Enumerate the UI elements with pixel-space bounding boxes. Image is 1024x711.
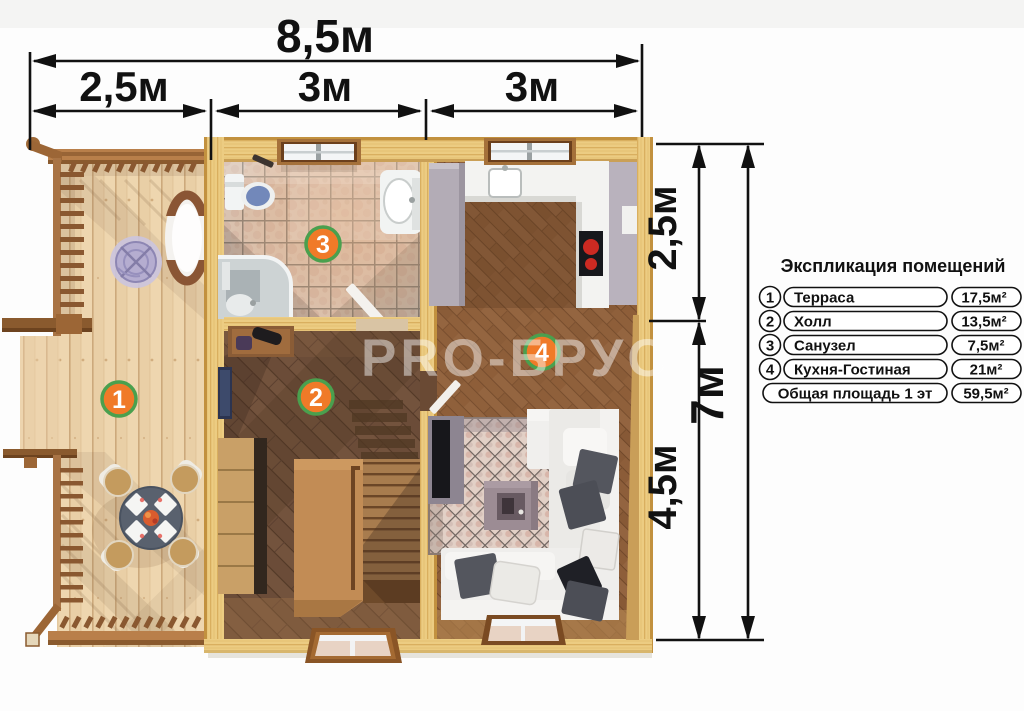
svg-text:3м: 3м — [298, 63, 352, 110]
svg-text:Терраса: Терраса — [794, 290, 855, 307]
svg-text:PRO-БРУС: PRO-БРУС — [361, 329, 670, 388]
svg-text:1: 1 — [766, 290, 774, 307]
svg-text:4: 4 — [766, 362, 775, 379]
svg-text:Санузел: Санузел — [794, 338, 856, 355]
svg-text:3: 3 — [316, 231, 330, 259]
svg-text:7м: 7м — [681, 365, 733, 425]
svg-text:17,5м²: 17,5м² — [961, 290, 1006, 307]
svg-text:2,5м: 2,5м — [79, 63, 168, 110]
svg-text:2,5м: 2,5м — [641, 185, 685, 270]
svg-text:8,5м: 8,5м — [276, 10, 374, 62]
svg-text:Экспликация помещений: Экспликация помещений — [781, 256, 1006, 276]
svg-text:1: 1 — [112, 386, 126, 414]
svg-text:3м: 3м — [505, 63, 559, 110]
svg-text:13,5м²: 13,5м² — [961, 314, 1006, 331]
svg-text:Холл: Холл — [794, 314, 832, 331]
svg-text:59,5м²: 59,5м² — [963, 386, 1008, 403]
svg-text:3: 3 — [766, 338, 774, 355]
svg-text:21м²: 21м² — [970, 362, 1003, 379]
svg-text:7,5м²: 7,5м² — [968, 338, 1005, 355]
svg-text:4,5м: 4,5м — [641, 444, 685, 529]
svg-text:2: 2 — [309, 384, 323, 412]
svg-text:2: 2 — [766, 314, 774, 331]
svg-text:Общая площадь 1 эт: Общая площадь 1 эт — [778, 386, 933, 403]
svg-text:Кухня-Гостиная: Кухня-Гостиная — [794, 362, 911, 379]
